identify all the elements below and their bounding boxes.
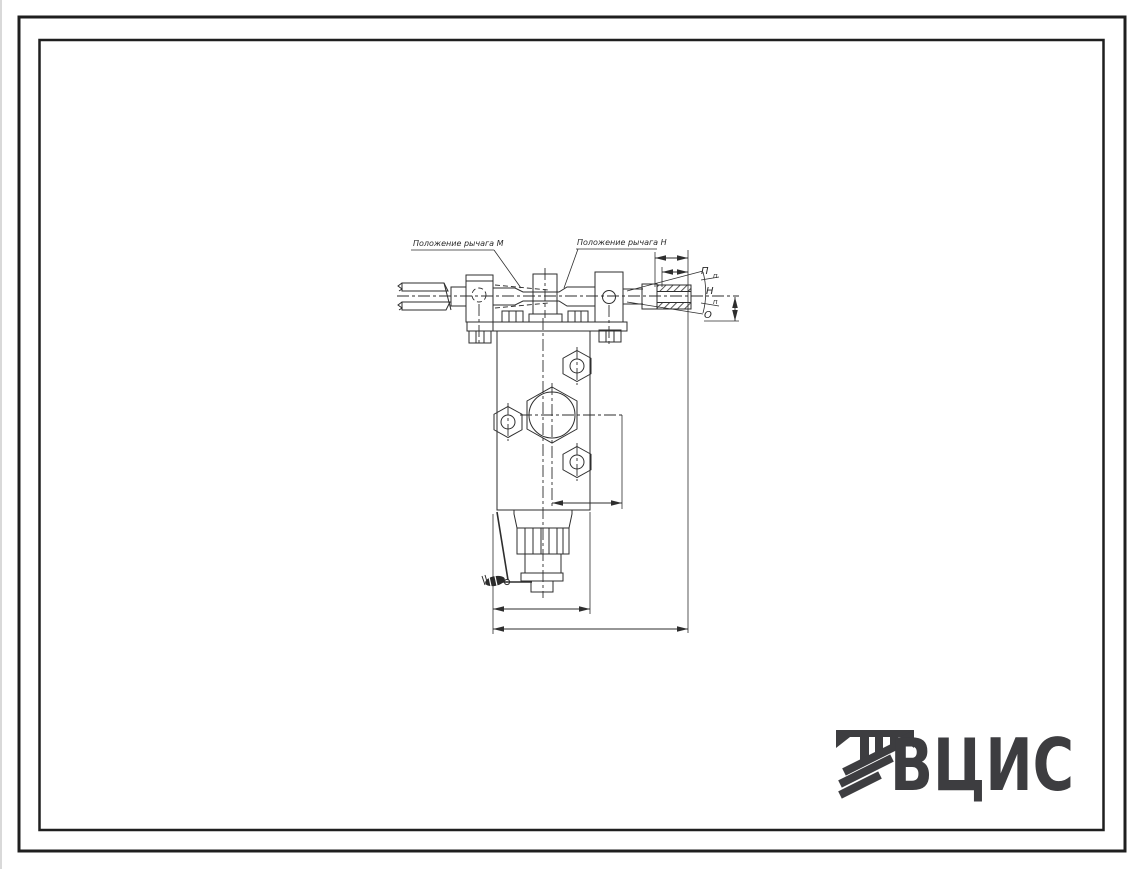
annotation-text: Положение рычага М	[413, 239, 504, 248]
position-letter-lower-small: п	[713, 298, 718, 306]
position-letter-bottom: О	[704, 310, 712, 321]
position-letter-upper-small: п	[713, 272, 718, 280]
logo-text: ВЦИС	[890, 723, 1074, 807]
position-letter-middle: Н	[706, 286, 714, 297]
drawing-sheet: Положение рычага М Положение рычага Н П …	[0, 0, 1139, 869]
scan-edge	[0, 0, 2, 869]
annotation-text: Положение рычага Н	[577, 238, 667, 247]
position-letter-top: П	[701, 266, 709, 277]
